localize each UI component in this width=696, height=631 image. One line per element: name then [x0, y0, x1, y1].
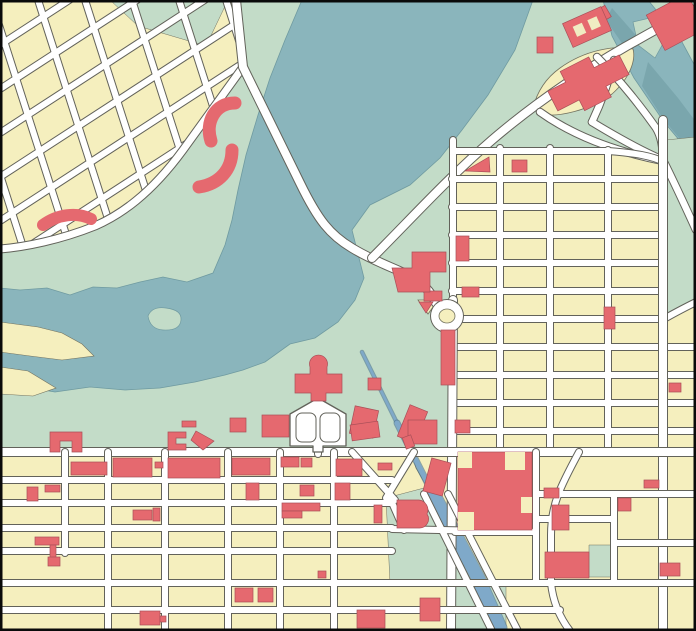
building	[604, 307, 615, 329]
building	[374, 505, 382, 523]
building	[235, 588, 253, 602]
building	[618, 498, 631, 511]
building	[153, 508, 160, 521]
city-map	[0, 0, 696, 631]
building	[113, 458, 152, 477]
building	[357, 610, 385, 628]
map-canvas[interactable]	[0, 0, 696, 631]
building	[281, 457, 299, 467]
building-notch	[505, 452, 525, 470]
building	[441, 330, 455, 385]
building	[544, 488, 559, 498]
building	[318, 571, 326, 578]
roundabout-island	[439, 309, 455, 323]
building	[140, 611, 160, 625]
building	[35, 537, 59, 545]
building	[71, 462, 107, 475]
building	[168, 458, 220, 478]
building	[182, 421, 196, 427]
building	[230, 418, 246, 432]
building	[232, 458, 270, 475]
building	[420, 598, 440, 621]
building	[258, 588, 273, 602]
building	[335, 483, 350, 500]
building	[301, 458, 312, 467]
building	[545, 552, 589, 578]
formal-garden-loop-0	[296, 413, 316, 442]
building	[644, 480, 659, 488]
building	[300, 485, 314, 496]
building	[336, 459, 362, 476]
building	[155, 462, 163, 468]
building	[160, 616, 166, 622]
building	[552, 505, 569, 530]
building	[368, 378, 381, 390]
building	[455, 420, 470, 433]
building	[282, 503, 320, 511]
building-notch	[521, 497, 532, 513]
building	[660, 563, 680, 576]
building	[48, 557, 60, 566]
building	[282, 511, 302, 518]
building	[45, 485, 60, 492]
building	[456, 236, 469, 261]
building	[462, 287, 479, 297]
building	[50, 545, 56, 558]
building	[27, 487, 38, 501]
building	[262, 415, 289, 437]
building	[378, 463, 392, 470]
building	[246, 483, 259, 500]
formal-garden-loop-1	[320, 413, 340, 442]
building-notch	[458, 512, 474, 530]
building	[669, 383, 681, 392]
building	[512, 160, 527, 172]
building	[350, 421, 380, 441]
building	[424, 291, 442, 301]
building-notch	[458, 452, 472, 468]
building	[537, 37, 553, 53]
building	[133, 510, 152, 520]
park-square	[589, 545, 611, 577]
building-round	[397, 500, 429, 528]
